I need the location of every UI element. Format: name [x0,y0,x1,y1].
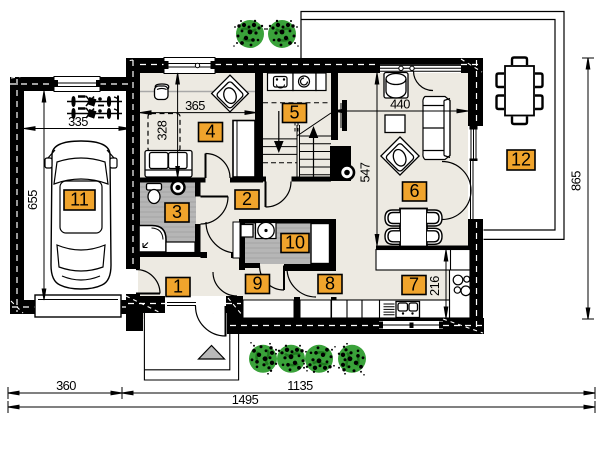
svg-text:328: 328 [155,120,170,140]
svg-text:6: 6 [409,181,419,201]
svg-text:440: 440 [390,97,410,112]
svg-text:9: 9 [252,274,262,294]
svg-text:360: 360 [56,378,76,393]
svg-text:1495: 1495 [232,392,259,407]
svg-text:5: 5 [289,103,299,123]
svg-text:7: 7 [409,275,419,295]
svg-text:8: 8 [325,274,335,294]
svg-text:216: 216 [427,276,442,296]
svg-text:10: 10 [285,233,305,253]
svg-text:547: 547 [358,162,373,182]
svg-text:3: 3 [172,202,182,222]
svg-text:4: 4 [205,122,215,142]
svg-text:365: 365 [185,98,205,113]
svg-text:12: 12 [511,150,531,170]
svg-text:2: 2 [242,189,252,209]
svg-text:1: 1 [173,277,183,297]
svg-text:11: 11 [70,190,89,210]
svg-text:655: 655 [25,190,40,210]
svg-text:865: 865 [569,171,584,191]
svg-text:1135: 1135 [287,378,313,393]
svg-text:335: 335 [68,114,88,129]
